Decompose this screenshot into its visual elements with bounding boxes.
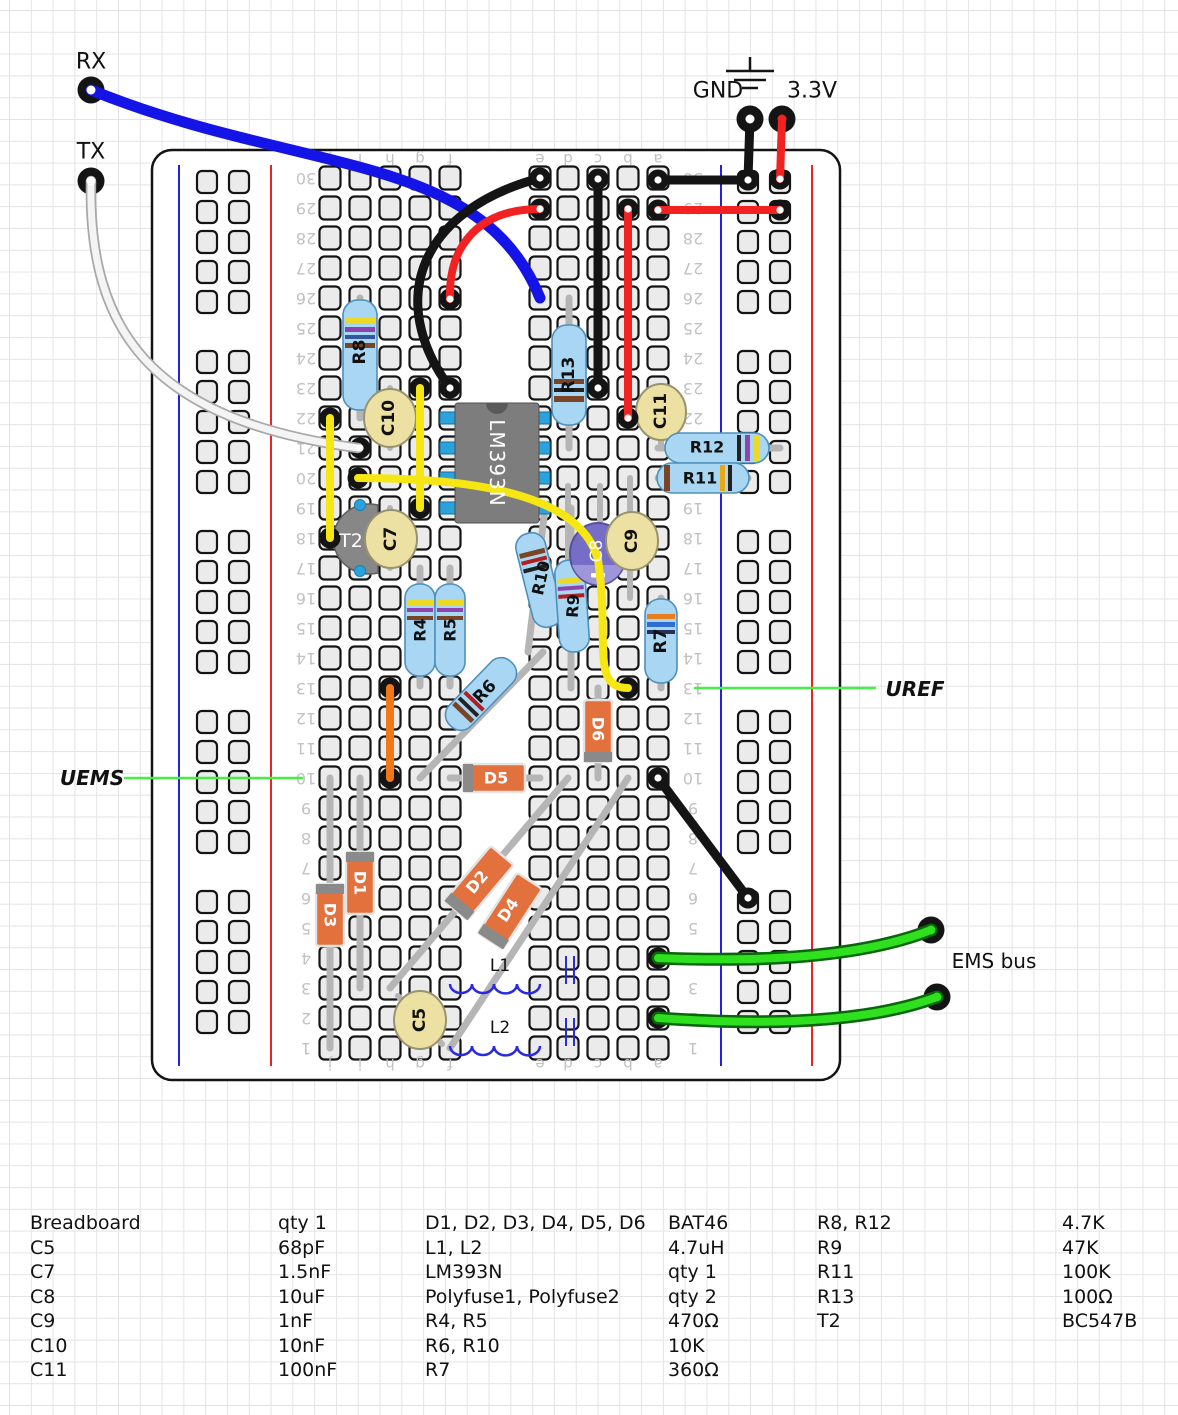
rail-hole (229, 711, 249, 733)
row-number: 6 (301, 889, 311, 908)
column-letter: h (385, 150, 395, 168)
parts-list-value: 1.5nF (278, 1261, 331, 1283)
rail-hole (770, 891, 790, 913)
rail-hole (197, 441, 217, 463)
rail-hole (229, 561, 249, 583)
breadboard-hole (350, 197, 371, 220)
breadboard-hole (320, 557, 341, 580)
uems-label: UEMS (60, 766, 124, 790)
breadboard-hole (588, 977, 609, 1000)
parts-list-value: 10nF (278, 1335, 325, 1357)
breadboard-hole (530, 347, 551, 370)
pad-center (746, 115, 755, 124)
wire-endpoint-center (654, 954, 661, 961)
row-number: 14 (683, 649, 703, 668)
row-number: 14 (296, 649, 316, 668)
wire-endpoint-center (416, 384, 423, 391)
breadboard-hole (320, 617, 341, 640)
wire-endpoint-center (776, 206, 783, 213)
pad-center (933, 993, 942, 1002)
column-letter: f (447, 150, 453, 168)
row-number: 13 (296, 679, 316, 698)
rail-hole (229, 1011, 249, 1033)
row-number: 30 (296, 169, 316, 188)
breadboard-hole (648, 917, 669, 940)
breadboard-hole (558, 227, 579, 250)
wire-endpoint-center (654, 1014, 661, 1021)
parts-list-value: BAT46 (668, 1212, 728, 1234)
row-number: 15 (683, 619, 703, 638)
rail-hole (197, 351, 217, 373)
parts-list-value: 10K (668, 1335, 705, 1357)
row-number: 24 (296, 349, 316, 368)
rail-hole (229, 891, 249, 913)
row-number: 24 (683, 349, 703, 368)
row-number: 5 (688, 919, 698, 938)
breadboard-hole (530, 317, 551, 340)
rail-hole (197, 891, 217, 913)
row-number: 3 (688, 979, 698, 998)
row-number: 9 (301, 799, 311, 818)
rail-hole (770, 771, 790, 793)
column-letter: d (563, 150, 573, 168)
rail-hole (738, 231, 758, 253)
wire-endpoint-center (624, 684, 631, 691)
breadboard-hole (648, 827, 669, 850)
breadboard-hole (410, 707, 431, 730)
breadboard-hole (530, 377, 551, 400)
parts-list-value: 1nF (278, 1310, 313, 1332)
parts-list-value: qty 1 (668, 1261, 717, 1283)
component-label-c10: C10 (379, 400, 399, 436)
rail-hole (770, 561, 790, 583)
breadboard-hole (558, 797, 579, 820)
rail-hole (229, 261, 249, 283)
rail-hole (197, 261, 217, 283)
breadboard-hole (588, 857, 609, 880)
column-letter: e (535, 150, 544, 168)
parts-list-name: C11 (30, 1359, 67, 1381)
breadboard-hole (588, 917, 609, 940)
column-letter: g (415, 1055, 425, 1073)
row-number: 18 (683, 529, 703, 548)
breadboard-hole (588, 887, 609, 910)
parts-list-name: C7 (30, 1261, 55, 1283)
row-number: 11 (296, 739, 316, 758)
component-label-d3: D3 (321, 903, 340, 927)
column-letter: a (653, 1055, 662, 1073)
wire-endpoint-center (594, 384, 601, 391)
wire-endpoint-center (446, 295, 453, 302)
row-number: 20 (296, 469, 316, 488)
breadboard-hole (350, 677, 371, 700)
parts-list-value: 100Ω (1062, 1286, 1113, 1308)
rail-hole (770, 291, 790, 313)
parts-list-name: LM393N (425, 1261, 502, 1283)
breadboard-hole (588, 947, 609, 970)
row-number: 12 (683, 709, 703, 728)
breadboard-hole (558, 977, 579, 1000)
breadboard-hole (558, 887, 579, 910)
row-number: 27 (296, 259, 316, 278)
rail-hole (770, 531, 790, 553)
rail-hole (229, 441, 249, 463)
breadboard-hole (440, 947, 461, 970)
component-label-r12: R12 (690, 438, 725, 457)
row-number: 11 (683, 739, 703, 758)
component-label-c11: C11 (651, 393, 671, 429)
component-label-c9: C9 (622, 529, 642, 553)
row-number: 17 (296, 559, 316, 578)
breadboard-hole (320, 257, 341, 280)
row-number: 23 (683, 379, 703, 398)
component-label-d6: D6 (589, 717, 608, 741)
breadboard-hole (410, 737, 431, 760)
rail-hole (770, 261, 790, 283)
rail-hole (770, 471, 790, 493)
parts-list-name: L1, L2 (425, 1237, 482, 1259)
rail-hole (738, 621, 758, 643)
wire-endpoint-center (354, 474, 361, 481)
rail-hole (770, 621, 790, 643)
column-letter: b (623, 1055, 633, 1073)
parts-list-value: 360Ω (668, 1359, 719, 1381)
rail-hole (229, 921, 249, 943)
board-graphics: 1122334455667788991010111112121313141415… (0, 0, 1178, 1415)
rail-hole (197, 621, 217, 643)
rail-hole (197, 981, 217, 1003)
breadboard-hole (320, 737, 341, 760)
breadboard-hole (618, 947, 639, 970)
rx-label: RX (76, 50, 106, 75)
parts-list-name: R4, R5 (425, 1310, 488, 1332)
breadboard-hole (588, 1007, 609, 1030)
breadboard-hole (648, 977, 669, 1000)
rail-hole (197, 531, 217, 553)
breadboard-hole (440, 347, 461, 370)
rail-hole (197, 291, 217, 313)
component-label-d5: D5 (484, 769, 508, 788)
wire-endpoint-center (654, 206, 661, 213)
rail-hole (738, 711, 758, 733)
row-number: 19 (683, 499, 703, 518)
parts-list-name: C10 (30, 1335, 67, 1357)
rail-hole (197, 741, 217, 763)
breadboard-hole (618, 1007, 639, 1030)
wire-endpoint-center (744, 894, 751, 901)
breadboard-hole (410, 827, 431, 850)
breadboard-hole (648, 257, 669, 280)
breadboard-hole (530, 1007, 551, 1030)
component-label-l1: L1 (490, 956, 510, 976)
rail-hole (229, 381, 249, 403)
rail-hole (229, 231, 249, 253)
rail-hole (770, 831, 790, 853)
component-label-r13: R13 (559, 357, 579, 394)
breadboard-hole (558, 917, 579, 940)
breadboard-hole (558, 197, 579, 220)
rail-hole (229, 951, 249, 973)
row-number: 15 (296, 619, 316, 638)
rail-hole (229, 171, 249, 193)
component-label-r4: R4 (411, 618, 430, 641)
rail-hole (738, 531, 758, 553)
row-number: 22 (296, 409, 316, 428)
wire-endpoint-center (326, 414, 333, 421)
breadboard-hole (380, 287, 401, 310)
rail-hole (738, 261, 758, 283)
rail-hole (770, 381, 790, 403)
breadboard-circuit-diagram: 1122334455667788991010111112121313141415… (0, 0, 1178, 1415)
breadboard-hole (380, 887, 401, 910)
breadboard-hole (558, 737, 579, 760)
breadboard-hole (320, 347, 341, 370)
rail-hole (229, 591, 249, 613)
rail-hole (229, 531, 249, 553)
breadboard-hole (380, 827, 401, 850)
breadboard-hole (618, 917, 639, 940)
breadboard-hole (350, 587, 371, 610)
breadboard-hole (350, 737, 371, 760)
rail-hole (738, 591, 758, 613)
breadboard-hole (380, 317, 401, 340)
row-number: 4 (301, 949, 311, 968)
breadboard-hole (410, 887, 431, 910)
row-number: 25 (296, 319, 316, 338)
parts-list-value: 47K (1062, 1237, 1099, 1259)
row-number: 27 (683, 259, 703, 278)
breadboard-hole (558, 257, 579, 280)
wire-endpoint-center (624, 205, 631, 212)
pad-center (87, 177, 96, 186)
breadboard-hole (410, 917, 431, 940)
breadboard-hole (618, 707, 639, 730)
wire-endpoint-center (326, 534, 333, 541)
rail-hole (738, 801, 758, 823)
row-number: 29 (296, 199, 316, 218)
rail-hole (229, 201, 249, 223)
rail-hole (738, 411, 758, 433)
breadboard-hole (648, 887, 669, 910)
component-label-r5: R5 (441, 618, 460, 641)
breadboard-hole (648, 287, 669, 310)
wire-endpoint-center (356, 444, 363, 451)
breadboard-hole (380, 587, 401, 610)
rail-hole (197, 951, 217, 973)
breadboard-hole (440, 857, 461, 880)
column-letter: h (385, 1055, 395, 1073)
pad-center (778, 115, 787, 124)
row-number: 1 (688, 1039, 698, 1058)
rail-hole (229, 291, 249, 313)
parts-list-value: 10uF (278, 1286, 325, 1308)
component-label-r9: R9 (563, 594, 584, 619)
rail-hole (197, 471, 217, 493)
breadboard-hole (380, 797, 401, 820)
row-number: 18 (296, 529, 316, 548)
rail-hole (197, 1011, 217, 1033)
tx-label: TX (77, 140, 106, 165)
column-letter: j (328, 1055, 333, 1073)
rail-hole (770, 651, 790, 673)
column-letter: f (447, 1055, 453, 1073)
rail-hole (770, 921, 790, 943)
breadboard-hole (320, 197, 341, 220)
parts-list-name: C8 (30, 1286, 55, 1308)
breadboard-hole (410, 227, 431, 250)
pad-center (927, 926, 936, 935)
gnd-label: GND (693, 79, 743, 104)
breadboard-hole (618, 797, 639, 820)
rail-hole (229, 651, 249, 673)
component-label-r7: R7 (651, 629, 671, 654)
parts-list-name: Polyfuse1, Polyfuse2 (425, 1286, 620, 1308)
breadboard-hole (648, 497, 669, 520)
component-label-c7: C7 (381, 527, 401, 551)
breadboard-hole (320, 287, 341, 310)
row-number: 16 (296, 589, 316, 608)
rail-hole (197, 591, 217, 613)
breadboard-hole (530, 827, 551, 850)
parts-list-name: C5 (30, 1237, 55, 1259)
row-number: 19 (296, 499, 316, 518)
rail-hole (738, 831, 758, 853)
gnd-drop-wire (748, 119, 750, 179)
row-number: 28 (683, 229, 703, 248)
rail-hole (770, 981, 790, 1003)
parts-list-value: 68pF (278, 1237, 325, 1259)
rail-hole (738, 351, 758, 373)
wire-endpoint-center (624, 414, 631, 421)
breadboard-hole (558, 827, 579, 850)
rail-hole (738, 981, 758, 1003)
breadboard-hole (558, 167, 579, 190)
parts-list-name: Breadboard (30, 1212, 141, 1234)
rail-hole (197, 561, 217, 583)
rail-hole (229, 831, 249, 853)
breadboard-hole (530, 707, 551, 730)
rail-hole (770, 591, 790, 613)
rail-hole (229, 741, 249, 763)
parts-list-value: BC547B (1062, 1310, 1137, 1332)
breadboard-hole (410, 797, 431, 820)
breadboard-hole (320, 377, 341, 400)
wire-endpoint-center (654, 176, 661, 183)
column-letter: d (563, 1055, 573, 1073)
breadboard-hole (618, 647, 639, 670)
row-number: 7 (301, 859, 311, 878)
breadboard-hole (648, 857, 669, 880)
parts-list-name: R11 (817, 1261, 854, 1283)
breadboard-hole (410, 857, 431, 880)
breadboard-hole (558, 1007, 579, 1030)
row-number: 10 (683, 769, 703, 788)
component-label-t2: T2 (339, 530, 363, 552)
breadboard-hole (410, 197, 431, 220)
breadboard-hole (588, 437, 609, 460)
parts-list-value: qty 2 (668, 1286, 717, 1308)
breadboard-hole (558, 707, 579, 730)
row-number: 8 (301, 829, 311, 848)
row-number: 26 (683, 289, 703, 308)
breadboard-hole (350, 617, 371, 640)
rail-hole (197, 921, 217, 943)
breadboard-hole (320, 587, 341, 610)
breadboard-hole (618, 827, 639, 850)
row-number: 1 (301, 1039, 311, 1058)
rail-hole (738, 651, 758, 673)
breadboard-hole (320, 647, 341, 670)
breadboard-hole (530, 947, 551, 970)
component-label-r8: R8 (350, 340, 370, 365)
breadboard-hole (440, 827, 461, 850)
breadboard-hole (648, 347, 669, 370)
breadboard-hole (380, 347, 401, 370)
breadboard-hole (618, 857, 639, 880)
column-letter: i (358, 1055, 362, 1073)
wire-endpoint-center (416, 504, 423, 511)
breadboard-hole (440, 527, 461, 550)
rail-hole (197, 711, 217, 733)
rail-hole (229, 621, 249, 643)
rail-hole (770, 441, 790, 463)
breadboard-hole (320, 167, 341, 190)
breadboard-hole (380, 257, 401, 280)
breadboard-hole (588, 407, 609, 430)
breadboard-hole (648, 317, 669, 340)
row-number: 5 (301, 919, 311, 938)
rail-hole (738, 291, 758, 313)
row-number: 6 (688, 889, 698, 908)
component-label-r11: R11 (683, 469, 718, 488)
uref-label: UREF (886, 677, 945, 701)
rail-hole (770, 711, 790, 733)
breadboard-hole (440, 317, 461, 340)
rail-hole (197, 231, 217, 253)
breadboard-hole (380, 647, 401, 670)
row-number: 7 (688, 859, 698, 878)
rail-hole (229, 981, 249, 1003)
row-number: 25 (683, 319, 703, 338)
rail-hole (197, 651, 217, 673)
wire-endpoint-center (386, 684, 393, 691)
breadboard-hole (320, 227, 341, 250)
wire-endpoint-center (386, 774, 393, 781)
breadboard-hole (440, 797, 461, 820)
breadboard-hole (350, 257, 371, 280)
wire-endpoint-center (594, 175, 601, 182)
breadboard-hole (558, 947, 579, 970)
parts-list-name: R8, R12 (817, 1212, 892, 1234)
rail-hole (738, 921, 758, 943)
breadboard-hole (648, 737, 669, 760)
breadboard-hole (530, 857, 551, 880)
parts-list-name: D1, D2, D3, D4, D5, D6 (425, 1212, 646, 1234)
breadboard-hole (618, 737, 639, 760)
column-letter: g (415, 150, 425, 168)
row-number: 12 (296, 709, 316, 728)
rail-hole (229, 771, 249, 793)
parts-list-name: T2 (817, 1310, 841, 1332)
breadboard-hole (530, 737, 551, 760)
breadboard-hole (320, 707, 341, 730)
breadboard-hole (648, 227, 669, 250)
breadboard-hole (618, 437, 639, 460)
column-letter: b (623, 150, 633, 168)
breadboard-hole (530, 677, 551, 700)
column-letter: e (535, 1055, 544, 1073)
parts-list-name: R6, R10 (425, 1335, 500, 1357)
